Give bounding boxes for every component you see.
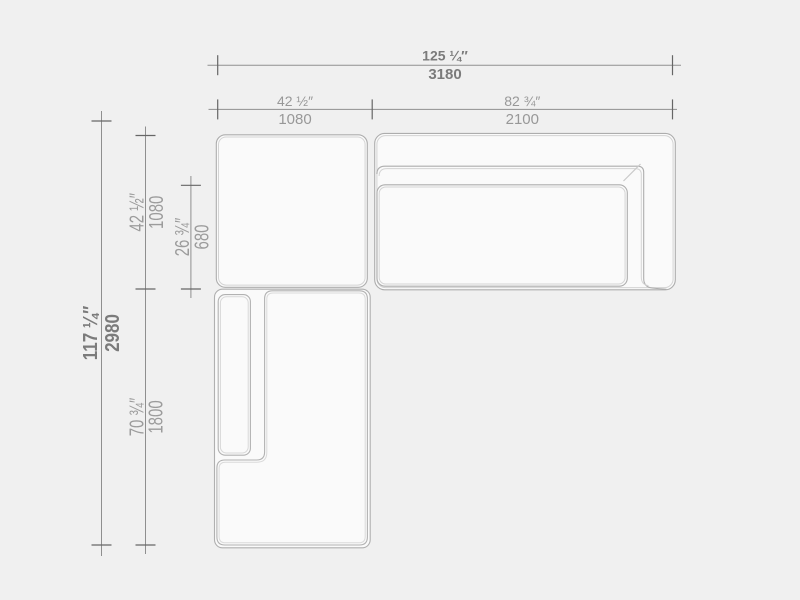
svg-text:1080: 1080 [278, 111, 311, 128]
svg-text:125 ¼″: 125 ¼″ [422, 48, 468, 64]
svg-text:2980: 2980 [100, 314, 123, 352]
svg-text:1800: 1800 [145, 400, 168, 433]
svg-text:1080: 1080 [145, 196, 168, 229]
svg-text:2100: 2100 [506, 111, 539, 128]
svg-text:3180: 3180 [428, 66, 461, 83]
svg-text:42 ½″: 42 ½″ [277, 93, 313, 109]
svg-text:680: 680 [190, 224, 213, 249]
svg-text:117 ¼″: 117 ¼″ [78, 306, 101, 360]
svg-text:82 ¾″: 82 ¾″ [504, 93, 540, 109]
